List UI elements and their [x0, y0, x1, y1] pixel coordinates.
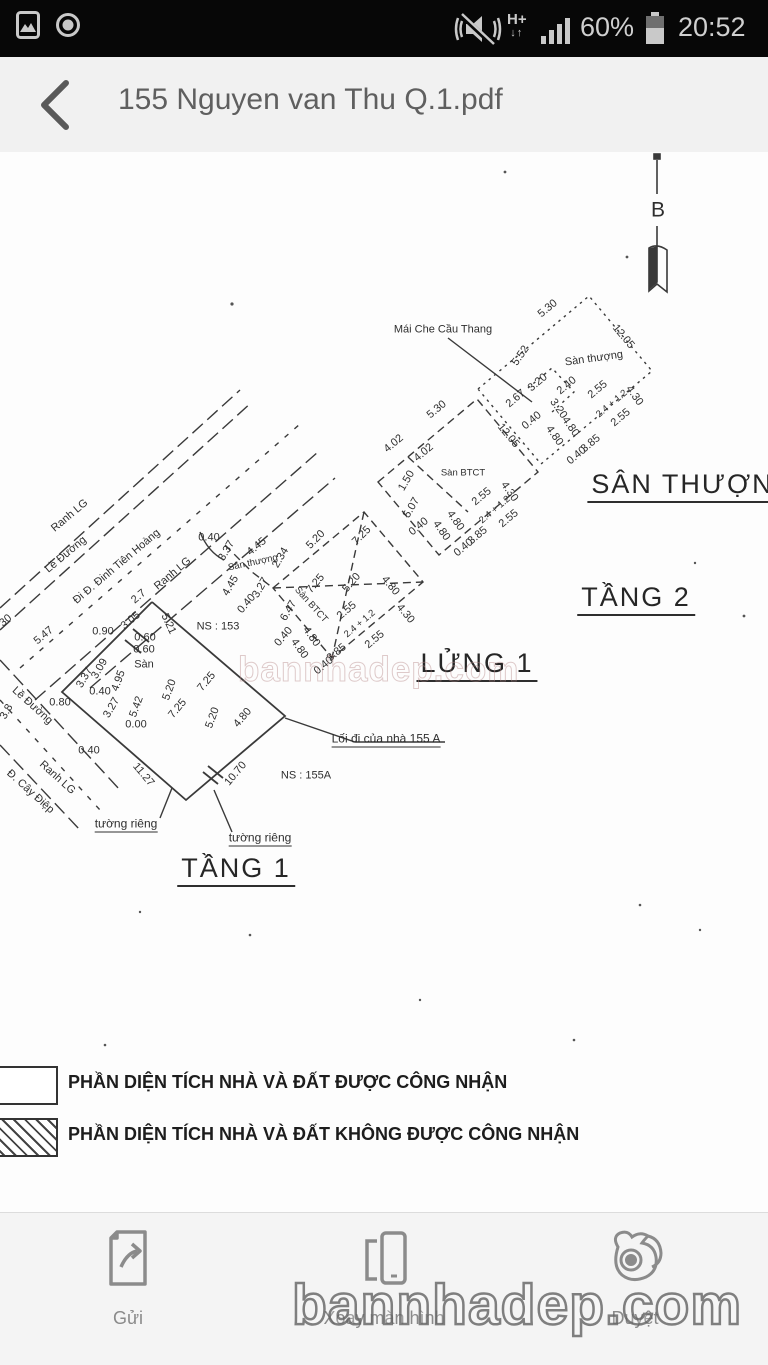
share-document-icon [99, 1227, 157, 1289]
plan-annotation: 4.45 [221, 574, 241, 598]
plan-annotation: 5.52 [510, 344, 531, 368]
plan-annotation: 0.00 [125, 720, 146, 731]
plan-annotation: TẦNG 2 [577, 584, 695, 616]
plan-annotation: 4.95 [110, 669, 128, 693]
plan-annotation: 2.34 [271, 546, 291, 570]
plan-annotation: 4.80 [543, 424, 564, 448]
plan-annotation: 7.25 [351, 525, 374, 548]
plan-annotation: 6.47 [279, 599, 299, 623]
legend-row-not-recognized: PHẦN DIỆN TÍCH NHÀ VÀ ĐẤT KHÔNG ĐƯỢC CÔN… [0, 1118, 768, 1158]
toolbar-label: Duyệt [545, 1308, 725, 1329]
plan-annotation: 4.80 [379, 574, 401, 597]
plan-annotation: 4.80 [232, 706, 254, 729]
plan-annotation: 12.05 [610, 323, 636, 351]
plan-annotation: 0.40 [452, 537, 475, 559]
plan-annotation: Mái Che Cầu Thang [394, 325, 492, 336]
plan-annotation: 5.20 [341, 571, 363, 594]
plan-annotation: 0.40 [89, 687, 110, 698]
plan-annotation: 4.02 [412, 442, 435, 464]
plan-annotation: 4.30 [623, 384, 644, 408]
plan-annotation: Lối đi của nhà 155 A [332, 733, 441, 748]
plan-annotation: Lề Đường [43, 535, 88, 576]
plan-annotation: 3.8 [0, 703, 16, 722]
plan-annotation: 11.27 [130, 761, 156, 789]
rotate-screen-icon [355, 1227, 413, 1289]
plan-annotation: 0.60 [133, 645, 154, 656]
plan-annotation: Sàn [134, 660, 154, 671]
phone-screen: H+↓↑ 60% 20:52 155 Nguyen van Thu Q.1.pd… [0, 0, 768, 1365]
plan-annotation: SÂN THƯỢNG [587, 471, 768, 503]
plan-annotation: 0.40 [565, 445, 588, 467]
plan-annotation: NS : 153 [197, 622, 240, 633]
plan-annotation: 0.80 [49, 698, 70, 709]
plan-annotation: 2.55 [586, 379, 609, 401]
plan-annotation: 5.20 [204, 706, 222, 730]
legend-row-recognized: PHẦN DIỆN TÍCH NHÀ VÀ ĐẤT ĐƯỢC CÔNG NHẬN [0, 1066, 768, 1106]
plan-annotation: 3.27 [102, 696, 122, 720]
rotate-screen-button[interactable]: Xoay màn hình [294, 1227, 474, 1329]
plan-annotation: 0.40 [312, 655, 335, 677]
plan-annotation: 2.40 [555, 375, 578, 397]
plan-annotation: 2.7 [130, 588, 149, 606]
plan-annotation: 5.21 [158, 612, 177, 636]
plan-annotation: 2.55 [609, 407, 632, 429]
plan-annotation: 3.37 [217, 539, 237, 563]
plan-annotation: 5.30 [536, 298, 559, 320]
plan-annotation: 2.55 [363, 629, 386, 651]
plan-annotation: Ranh LG [37, 759, 77, 797]
toolbar-label: Xoay màn hình [294, 1308, 474, 1329]
plan-annotation: tường riêng [229, 832, 292, 847]
plan-annotation: 0.40 [78, 746, 99, 757]
share-button[interactable]: Gửi [38, 1227, 218, 1329]
plan-annotation: 12.05 [495, 422, 521, 450]
legend-label: PHẦN DIỆN TÍCH NHÀ VÀ ĐẤT KHÔNG ĐƯỢC CÔN… [68, 1124, 579, 1145]
plan-annotation: Ranh LG [50, 498, 91, 535]
plan-annotation: 5.47 [32, 625, 55, 647]
legend-swatch-hatched [0, 1118, 58, 1157]
plan-annotation: 3.09 [90, 657, 110, 681]
plan-annotation: Sàn thượng [564, 349, 624, 368]
plan-annotation: 5.30 [425, 399, 448, 421]
plan-annotation: 5.07 [402, 496, 422, 520]
legend-label: PHẦN DIỆN TÍCH NHÀ VÀ ĐẤT ĐƯỢC CÔNG NHẬN [68, 1072, 507, 1093]
plan-annotation: Ranh LG [153, 556, 194, 593]
browse-button[interactable]: Duyệt [545, 1227, 725, 1329]
plan-annotation: 2.67 [504, 388, 527, 410]
plan-annotation: TẦNG 1 [177, 855, 295, 887]
toolbar-label: Gửi [38, 1308, 218, 1329]
bottom-toolbar: Gửi Xoay màn hình Duyệt [0, 1212, 768, 1365]
uc-browser-icon [604, 1227, 666, 1289]
plan-annotation: 0.40 [520, 410, 543, 432]
plan-annotation: 0.90 [92, 627, 113, 638]
floor-plan-annotations: BMái Che Cầu ThangSàn thượng5.3012.055.5… [0, 0, 768, 1212]
plan-annotation: 3.20 [526, 372, 549, 394]
plan-annotation: 7.25 [196, 670, 218, 693]
plan-annotation: Sàn BTCT [441, 468, 485, 478]
plan-annotation: B [651, 200, 665, 221]
plan-annotation: LỬNG 1 [416, 650, 537, 682]
plan-annotation: 5.20 [305, 529, 328, 552]
plan-annotation: 30 [0, 613, 14, 629]
plan-annotation: 5.20 [161, 678, 179, 702]
plan-annotation: 1.50 [397, 469, 417, 493]
plan-annotation: 10.70 [223, 760, 249, 788]
plan-annotation: 0.40 [198, 533, 219, 544]
plan-annotation: NS : 155A [281, 771, 331, 782]
plan-annotation: 4.30 [394, 602, 416, 625]
plan-annotation: 7.25 [305, 572, 327, 595]
plan-annotation: 0.40 [236, 592, 258, 615]
legend-swatch-plain [0, 1066, 58, 1105]
plan-annotation: 3.05 [119, 610, 142, 632]
plan-annotation: 4.80 [559, 415, 580, 439]
plan-annotation: 5.42 [128, 695, 146, 719]
plan-annotation: 4.02 [382, 433, 405, 455]
plan-annotation: tường riêng [95, 818, 158, 833]
plan-annotation: Lề Đường [10, 685, 55, 727]
plan-annotation: 0.60 [134, 633, 155, 644]
